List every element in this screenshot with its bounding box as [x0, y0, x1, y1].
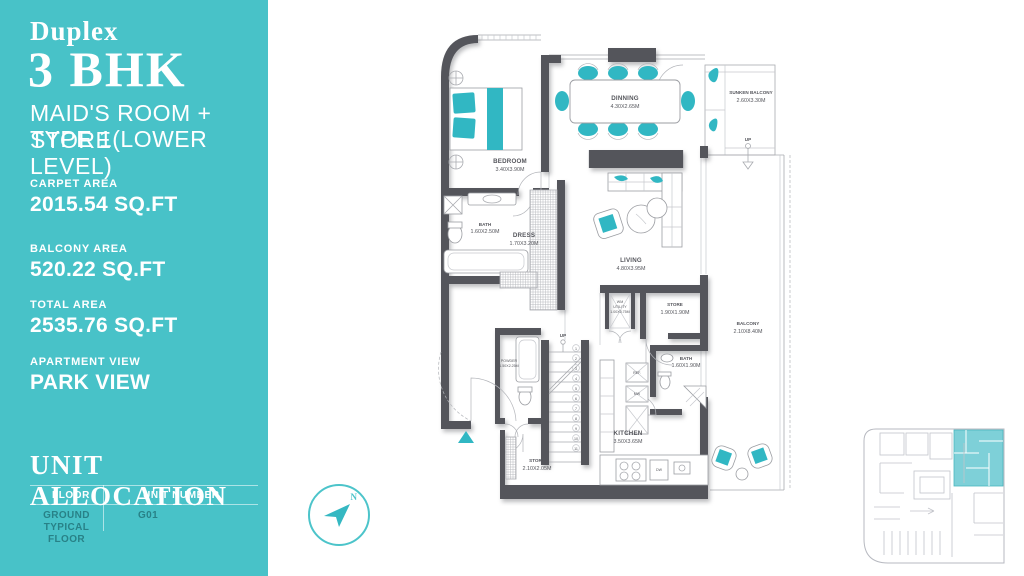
powder-dims: 1.50X2.25M — [499, 364, 518, 368]
svg-text:9: 9 — [575, 427, 577, 431]
dining-area: DINNING 4.30X2.65M — [555, 64, 695, 140]
dining-label: DINNING — [611, 95, 639, 102]
up-label-2: UP — [560, 333, 566, 338]
bedroom-area: BEDROOM 3.40X3.90M — [449, 71, 527, 173]
svg-text:10: 10 — [574, 437, 578, 441]
balcony-label: BALCONY — [737, 321, 760, 326]
living-label: LIVING — [620, 257, 642, 264]
carpet-area-stat: CARPET AREA 2015.54 SQ.FT — [30, 178, 177, 217]
store2-label: STORE — [529, 458, 545, 463]
dw-label: DW — [656, 468, 663, 472]
powder-label: POWDER — [501, 359, 518, 363]
utility-closet: WM UTILITY 1.00X0.75M — [610, 294, 630, 328]
living-area: LIVING 4.80X3.95M — [592, 173, 682, 272]
dining-dims: 4.30X2.65M — [610, 104, 640, 110]
north-compass: N — [308, 484, 370, 546]
floor-column-header: FLOOR — [52, 490, 90, 501]
bath2-area: BATH 1.60X1.90M — [658, 354, 706, 408]
total-area-label: TOTAL AREA — [30, 299, 177, 311]
entrance-arrow-icon — [458, 431, 474, 443]
info-sidebar: Duplex 3 BHK MAID'S ROOM + STORE TYPE 1(… — [0, 0, 268, 576]
apartment-view-value: PARK VIEW — [30, 371, 150, 395]
svg-text:4: 4 — [575, 377, 577, 381]
unit-number-value: G01 — [103, 510, 193, 522]
apartment-view-stat: APARTMENT VIEW PARK VIEW — [30, 356, 150, 395]
store1-dims: 1.90X1.90M — [660, 310, 690, 316]
utility-dims: 1.00X0.75M — [610, 310, 629, 314]
svg-text:6: 6 — [575, 397, 577, 401]
mw-label: MW — [634, 392, 641, 396]
store1-area: STORE 1.90X1.90M — [660, 302, 690, 316]
svg-text:2: 2 — [575, 357, 577, 361]
utility-label-1: WM — [617, 300, 623, 304]
utility-label-2: UTILITY — [613, 305, 627, 309]
unit-number-column-header: UNIT NUMBER — [143, 490, 220, 501]
up-label-1: UP — [745, 137, 751, 142]
bedroom-label: BEDROOM — [493, 158, 527, 165]
bath1-label: BATH — [479, 222, 492, 227]
balcony-area-value: 520.22 SQ.FT — [30, 258, 166, 282]
balcony-area: BALCONY 2.10X8.40M — [710, 321, 774, 480]
store1-label: STORE — [667, 302, 683, 307]
sunken-balcony-area: SUNKEN BALCONY 2.60X3.30M UP — [708, 68, 772, 169]
stairs: UP 1 2 3 4 5 6 7 8 9 10 11 — [549, 333, 581, 462]
svg-text:1: 1 — [575, 347, 577, 351]
unit-subtitle-2: TYPE 1(LOWER LEVEL) — [30, 126, 268, 180]
balcony-dims: 2.10X8.40M — [733, 329, 763, 335]
stair-step-numbers: 1 2 3 4 5 6 7 8 9 10 11 — [573, 345, 580, 452]
apartment-view-label: APARTMENT VIEW — [30, 356, 150, 368]
svg-text:8: 8 — [575, 417, 577, 421]
bath2-dims: 1.60X1.90M — [671, 363, 701, 369]
keyplan-unit-highlight — [954, 430, 1003, 486]
unit-allocation-title: UNIT ALLOCATION — [30, 450, 268, 512]
carpet-area-label: CARPET AREA — [30, 178, 177, 190]
balcony-area-stat: BALCONY AREA 520.22 SQ.FT — [30, 243, 166, 282]
dress-label: DRESS — [513, 232, 535, 239]
svg-text:11: 11 — [574, 447, 578, 451]
bath2-label: BATH — [680, 356, 693, 361]
north-label: N — [351, 492, 358, 502]
keyplan — [854, 423, 1018, 573]
balcony-area-label: BALCONY AREA — [30, 243, 166, 255]
floor-value: GROUND TYPICAL FLOOR — [30, 510, 103, 546]
carpet-area-value: 2015.54 SQ.FT — [30, 193, 177, 217]
bedroom-dims: 3.40X3.90M — [495, 167, 525, 173]
total-area-stat: TOTAL AREA 2535.76 SQ.FT — [30, 299, 177, 338]
dress-dims: 1.70X3.20M — [509, 241, 539, 247]
unit-type-title: 3 BHK — [28, 40, 187, 98]
total-area-value: 2535.76 SQ.FT — [30, 314, 177, 338]
kitchen-label: KITCHEN — [614, 430, 643, 437]
svg-text:5: 5 — [575, 387, 577, 391]
store2-dims: 2.10X2.05M — [522, 466, 552, 472]
svg-text:3: 3 — [575, 367, 577, 371]
svg-text:7: 7 — [575, 407, 577, 411]
floorplan: BEDROOM 3.40X3.90M BATH 1.60X2.50M DRESS… — [428, 22, 798, 506]
ref-label: REF. — [633, 371, 641, 375]
sunken-balcony-label: SUNKEN BALCONY — [729, 90, 772, 95]
sunken-balcony-dims: 2.60X3.30M — [736, 98, 766, 104]
bath1-dims: 1.60X2.50M — [470, 229, 500, 235]
living-dims: 4.80X3.95M — [616, 266, 646, 272]
compass-arrow-icon — [310, 486, 368, 544]
kitchen-dims: 3.50X3.65M — [613, 439, 643, 445]
powder-area: POWDER 1.50X2.25M — [499, 337, 539, 405]
page: Duplex 3 BHK MAID'S ROOM + STORE TYPE 1(… — [0, 0, 1024, 576]
